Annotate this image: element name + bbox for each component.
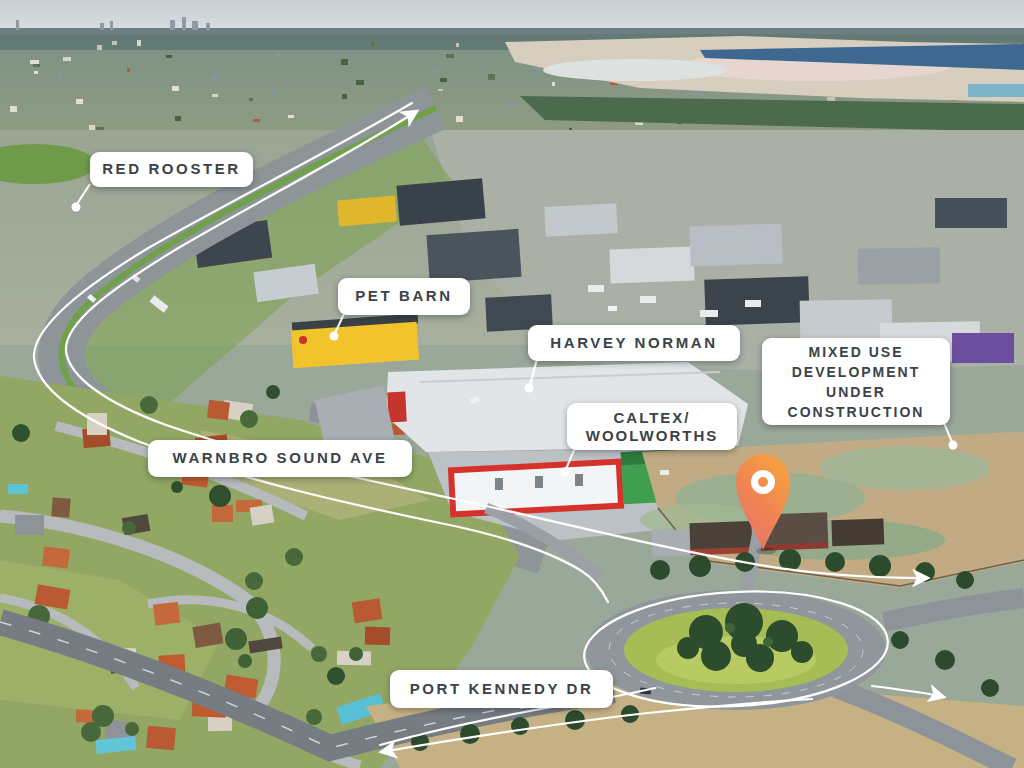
distant-speckle xyxy=(456,43,459,47)
label-port-kennedy-dr: PORT KENNEDY DR xyxy=(390,670,613,708)
purple-roof xyxy=(952,333,1014,363)
distant-speckle xyxy=(30,60,39,64)
distant-speckle xyxy=(211,75,217,81)
house-roof xyxy=(15,515,44,536)
distant-speckle xyxy=(695,91,703,94)
tree xyxy=(125,722,139,736)
tree xyxy=(349,647,363,661)
distant-speckle xyxy=(175,116,181,121)
distant-speckle xyxy=(552,82,555,86)
tree xyxy=(285,548,303,566)
house-roof xyxy=(250,504,275,525)
distant-speckle xyxy=(635,122,643,125)
distant-speckle xyxy=(172,86,179,91)
tree xyxy=(238,654,252,668)
distant-speckle xyxy=(58,73,62,78)
label-text: PET BARN xyxy=(355,287,452,305)
tree xyxy=(266,385,280,399)
label-red-rooster: RED ROOSTER xyxy=(90,152,253,187)
label-caltex-woolworths: CALTEX/ WOOLWORTHS xyxy=(567,403,737,450)
label-harvey-norman: HARVEY NORMAN xyxy=(528,325,740,361)
roundabout xyxy=(586,590,886,710)
label-text: DEVELOPMENT xyxy=(792,362,921,382)
house-roof xyxy=(42,547,70,569)
distant-speckle xyxy=(446,54,454,58)
tree xyxy=(245,572,263,590)
distant-speckle xyxy=(341,59,348,65)
distant-speckle xyxy=(508,102,515,104)
tree xyxy=(225,628,247,650)
distant-speckle xyxy=(212,94,218,97)
distant-speckle xyxy=(63,57,71,61)
label-text: UNDER xyxy=(826,382,886,402)
distant-speckle xyxy=(10,106,17,112)
distant-speckle xyxy=(166,55,172,58)
distant-speckle xyxy=(271,88,277,93)
house-roof xyxy=(87,413,107,435)
tree xyxy=(140,396,158,414)
label-text: WARNBRO SOUND AVE xyxy=(172,449,387,467)
tree xyxy=(122,521,136,535)
distant-speckle xyxy=(288,115,294,118)
distant-speckle xyxy=(137,40,141,46)
sky xyxy=(0,0,1024,38)
distant-speckle xyxy=(33,64,40,67)
distant-speckle xyxy=(438,89,443,91)
distant-speckle xyxy=(249,98,253,101)
distant-speckle xyxy=(440,78,447,82)
label-text: PORT KENNEDY DR xyxy=(410,680,594,698)
label-text: MIXED USE xyxy=(808,342,903,362)
label-text: CONSTRUCTION xyxy=(788,402,925,422)
tree xyxy=(240,410,258,428)
tree xyxy=(306,709,322,725)
label-warnbro-sound-ave: WARNBRO SOUND AVE xyxy=(148,440,412,477)
distant-speckle xyxy=(253,119,260,122)
house-roof xyxy=(212,505,233,522)
house-roof xyxy=(153,602,180,626)
distant-speckle xyxy=(371,42,375,47)
tree xyxy=(327,667,345,685)
label-text: HARVEY NORMAN xyxy=(550,334,717,352)
label-text: WOOLWORTHS xyxy=(586,427,719,445)
distant-speckle xyxy=(356,80,364,85)
house-roof xyxy=(146,726,176,750)
distant-speckle xyxy=(488,74,495,80)
distant-speckle xyxy=(97,45,102,50)
distant-speckle xyxy=(127,68,130,72)
distant-speckle xyxy=(342,94,347,99)
distant-speckle xyxy=(318,111,326,113)
distant-speckle xyxy=(34,71,38,74)
house-roof xyxy=(365,627,391,646)
label-mixed-use-development: MIXED USE DEVELOPMENT UNDER CONSTRUCTION xyxy=(762,338,950,425)
aerial-location-map: RED ROOSTER PET BARN HARVEY NORMAN MIXED… xyxy=(0,0,1024,768)
tree xyxy=(81,722,101,742)
label-text: CALTEX/ xyxy=(613,409,690,427)
distant-speckle xyxy=(431,70,436,73)
distant-speckle xyxy=(76,99,83,104)
house-roof xyxy=(207,400,230,420)
label-text: RED ROOSTER xyxy=(102,160,241,178)
house-roof xyxy=(352,598,383,623)
label-pet-barn: PET BARN xyxy=(338,278,470,315)
tree xyxy=(246,597,268,619)
tree xyxy=(12,424,30,442)
distant-suburbs xyxy=(0,34,1024,138)
tree xyxy=(171,481,183,493)
house-roof xyxy=(51,497,70,517)
pet-barn-building xyxy=(291,314,419,369)
distant-speckle xyxy=(456,116,463,122)
distant-speckle xyxy=(112,41,117,45)
distant-speckle xyxy=(277,53,280,56)
tree xyxy=(209,485,231,507)
tree xyxy=(311,646,327,662)
